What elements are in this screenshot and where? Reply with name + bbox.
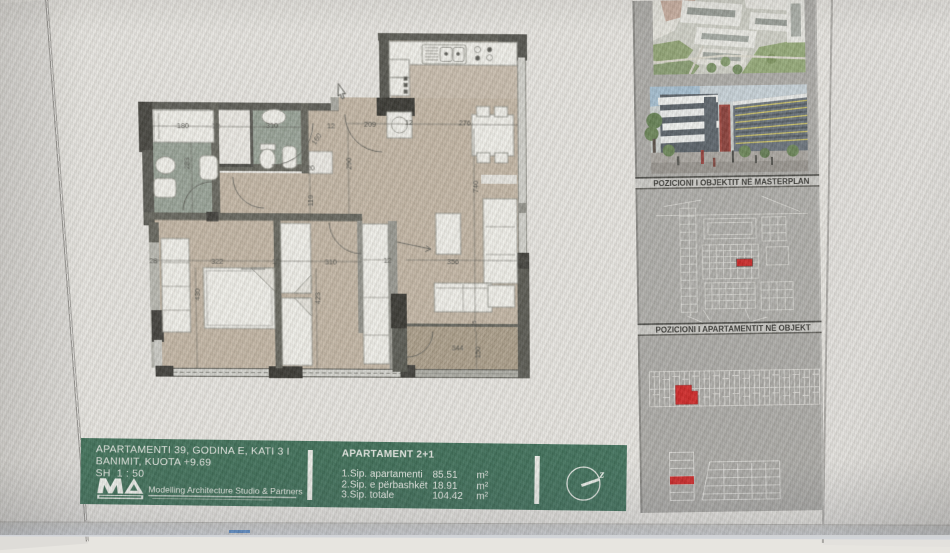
- svg-text:Modelling Architecture Studio: Modelling Architecture Studio & Partners: [148, 484, 302, 496]
- svg-text:z: z: [598, 467, 604, 481]
